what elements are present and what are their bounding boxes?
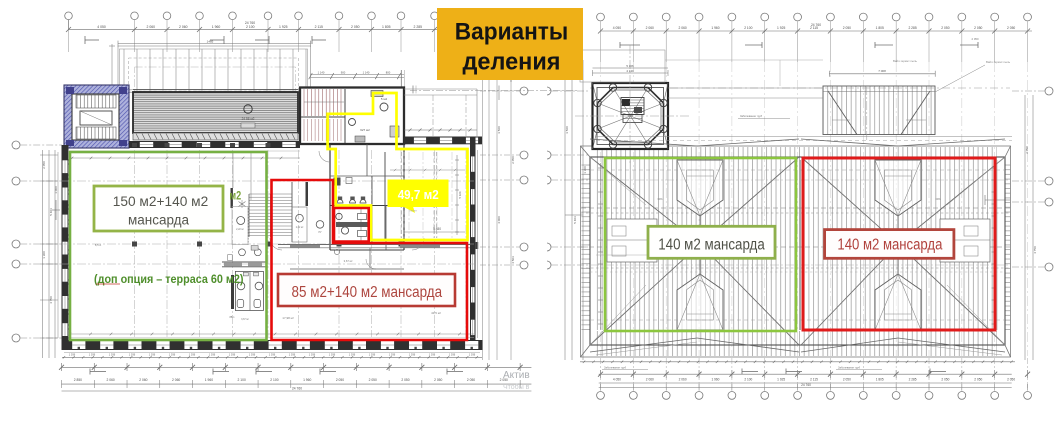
svg-text:2,22 м²: 2,22 м² — [296, 226, 304, 229]
svg-text:Заболевание труб: Заболевание труб — [604, 365, 627, 369]
svg-text:2 115: 2 115 — [810, 378, 818, 382]
svg-text:1 036: 1 036 — [129, 353, 136, 357]
svg-text:1 036: 1 036 — [289, 353, 296, 357]
svg-text:900: 900 — [341, 70, 346, 74]
svg-text:1 036: 1 036 — [389, 353, 396, 357]
svg-text:2 050: 2 050 — [351, 25, 360, 29]
svg-text:2 050: 2 050 — [974, 26, 982, 30]
svg-text:2 285: 2 285 — [909, 378, 917, 382]
svg-text:1 960: 1 960 — [711, 26, 719, 30]
svg-text:2 060: 2 060 — [646, 26, 654, 30]
svg-text:5 403: 5 403 — [573, 216, 577, 224]
svg-text:1 960: 1 960 — [711, 378, 719, 382]
svg-text:1 036: 1 036 — [469, 353, 476, 357]
svg-text:2 050: 2 050 — [843, 26, 851, 30]
svg-text:3 560: 3 560 — [497, 126, 501, 134]
svg-text:1 805: 1 805 — [382, 25, 391, 29]
svg-text:1 805: 1 805 — [876, 26, 884, 30]
svg-text:24 56 м2: 24 56 м2 — [242, 117, 255, 121]
svg-text:24 760: 24 760 — [801, 383, 811, 387]
svg-text:4 050: 4 050 — [613, 26, 621, 30]
svg-text:85 м2+140 м2 мансарда: 85 м2+140 м2 мансарда — [292, 284, 443, 301]
svg-text:2 060: 2 060 — [179, 25, 188, 29]
svg-text:1 036: 1 036 — [89, 353, 96, 357]
svg-text:РУ: РУ — [318, 231, 322, 234]
svg-text:1 036: 1 036 — [249, 353, 256, 357]
svg-text:2 050: 2 050 — [511, 156, 515, 164]
svg-text:3,67 м²: 3,67 м² — [241, 318, 249, 321]
svg-text:2 100: 2 100 — [246, 25, 255, 29]
svg-text:1 960: 1 960 — [303, 378, 311, 382]
svg-text:деления: деления — [463, 49, 561, 76]
svg-text:линия: линия — [409, 210, 417, 213]
svg-text:Чтобы в: Чтобы в — [503, 383, 530, 391]
svg-text:1 036: 1 036 — [269, 353, 276, 357]
svg-text:1 036: 1 036 — [229, 353, 236, 357]
svg-text:2 050: 2 050 — [1007, 378, 1015, 382]
svg-text:140 м2 мансарда: 140 м2 мансарда — [658, 237, 765, 254]
svg-text:1 036: 1 036 — [169, 353, 176, 357]
svg-text:2 050: 2 050 — [42, 161, 46, 169]
svg-text:2 060: 2 060 — [139, 378, 147, 382]
svg-text:2 100: 2 100 — [744, 378, 752, 382]
svg-text:3 560: 3 560 — [565, 126, 569, 134]
svg-text:2 100: 2 100 — [744, 26, 752, 30]
svg-text:2 285: 2 285 — [908, 26, 916, 30]
svg-text:49,7 м2: 49,7 м2 — [398, 187, 439, 202]
svg-text:2,22 м²: 2,22 м² — [236, 228, 244, 231]
svg-text:24 760: 24 760 — [292, 387, 302, 391]
svg-text:1 140: 1 140 — [363, 70, 370, 74]
svg-text:Заболевание труб: Заболевание труб — [838, 365, 861, 369]
svg-text:2 060: 2 060 — [172, 378, 180, 382]
svg-text:8В-1: 8В-1 — [229, 316, 235, 319]
svg-text:7 008: 7 008 — [878, 69, 886, 73]
svg-text:30%: 30% — [657, 197, 663, 201]
svg-text:1 036: 1 036 — [149, 353, 156, 357]
svg-text:2 050: 2 050 — [467, 378, 475, 382]
svg-text:м2: м2 — [229, 189, 241, 203]
svg-text:2 050: 2 050 — [972, 37, 979, 41]
svg-text:5 166: 5 166 — [626, 64, 634, 68]
svg-text:17,98 м²: 17,98 м² — [282, 316, 293, 320]
svg-text:8,5 А: 8,5 А — [95, 243, 101, 247]
svg-text:1 960: 1 960 — [212, 25, 221, 29]
svg-text:5 166: 5 166 — [458, 191, 462, 198]
svg-text:1 036: 1 036 — [309, 353, 316, 357]
svg-text:1 925: 1 925 — [279, 25, 288, 29]
svg-text:2 050: 2 050 — [401, 378, 409, 382]
svg-text:Вайл-термнт пыль: Вайл-термнт пыль — [893, 59, 918, 63]
svg-text:1 036: 1 036 — [69, 353, 76, 357]
svg-text:2 050: 2 050 — [369, 378, 377, 382]
svg-text:2 050: 2 050 — [1025, 146, 1029, 154]
svg-text:4 503: 4 503 — [511, 256, 515, 264]
svg-text:1 036: 1 036 — [189, 353, 196, 357]
svg-text:800: 800 — [386, 70, 391, 74]
svg-text:1 036: 1 036 — [409, 353, 416, 357]
svg-text:4 750: 4 750 — [1033, 246, 1037, 254]
svg-text:2 050: 2 050 — [434, 378, 442, 382]
svg-text:2 050: 2 050 — [941, 378, 949, 382]
svg-text:Вайл-термнт пыль: Вайл-термнт пыль — [986, 60, 1011, 64]
svg-text:5 403: 5 403 — [49, 208, 53, 216]
svg-text:2 060: 2 060 — [147, 25, 156, 29]
svg-text:2 060: 2 060 — [679, 378, 687, 382]
svg-text:мансарда: мансарда — [128, 213, 189, 229]
svg-text:1 140: 1 140 — [318, 70, 325, 74]
svg-text:1 036: 1 036 — [109, 353, 116, 357]
svg-text:1 805: 1 805 — [876, 378, 884, 382]
svg-text:1 036: 1 036 — [209, 353, 216, 357]
svg-text:2 850: 2 850 — [74, 378, 82, 382]
svg-text:1 925: 1 925 — [777, 26, 785, 30]
svg-text:4 050: 4 050 — [97, 25, 106, 29]
svg-text:24 760: 24 760 — [811, 23, 821, 27]
svg-text:627 м2: 627 м2 — [360, 128, 370, 132]
svg-text:2 060: 2 060 — [107, 378, 115, 382]
svg-text:2 060: 2 060 — [646, 378, 654, 382]
svg-text:2 100: 2 100 — [270, 378, 278, 382]
svg-text:2 115: 2 115 — [315, 25, 323, 29]
svg-text:140 м2 мансарда: 140 м2 мансарда — [837, 237, 942, 254]
svg-text:1 036: 1 036 — [429, 353, 436, 357]
svg-text:1485: 1485 — [207, 39, 214, 43]
svg-text:1 960: 1 960 — [205, 378, 213, 382]
svg-text:Заболевание труб: Заболевание труб — [740, 114, 763, 118]
svg-text:2 050: 2 050 — [941, 26, 949, 30]
svg-text:150 м2+140 м2: 150 м2+140 м2 — [113, 194, 209, 210]
svg-text:2 285: 2 285 — [414, 25, 423, 29]
svg-text:2 050: 2 050 — [843, 378, 851, 382]
svg-text:4 050: 4 050 — [613, 378, 621, 382]
svg-text:2 050: 2 050 — [974, 378, 982, 382]
svg-text:43,5 м²: 43,5 м² — [431, 311, 441, 315]
svg-text:1 036: 1 036 — [369, 353, 376, 357]
svg-text:2 100: 2 100 — [238, 378, 246, 382]
svg-text:Варианты: Варианты — [455, 19, 569, 46]
svg-text:4 130: 4 130 — [626, 69, 634, 73]
svg-text:1 000: 1 000 — [54, 186, 58, 194]
svg-text:1 036: 1 036 — [449, 353, 456, 357]
svg-text:5 м2: 5 м2 — [381, 97, 388, 101]
svg-text:3,67 м²: 3,67 м² — [344, 259, 353, 263]
svg-text:2 050: 2 050 — [1007, 26, 1015, 30]
svg-text:2 050: 2 050 — [336, 378, 344, 382]
svg-text:2 060: 2 060 — [678, 26, 686, 30]
svg-text:30%: 30% — [935, 197, 941, 201]
svg-text:1 925: 1 925 — [777, 378, 785, 382]
svg-text:1 036: 1 036 — [349, 353, 356, 357]
svg-text:4 000: 4 000 — [497, 216, 501, 224]
svg-text:Актив: Актив — [503, 370, 530, 381]
svg-text:1 300: 1 300 — [42, 251, 46, 259]
svg-text:1 036: 1 036 — [329, 353, 336, 357]
svg-text:24 760: 24 760 — [245, 21, 255, 25]
